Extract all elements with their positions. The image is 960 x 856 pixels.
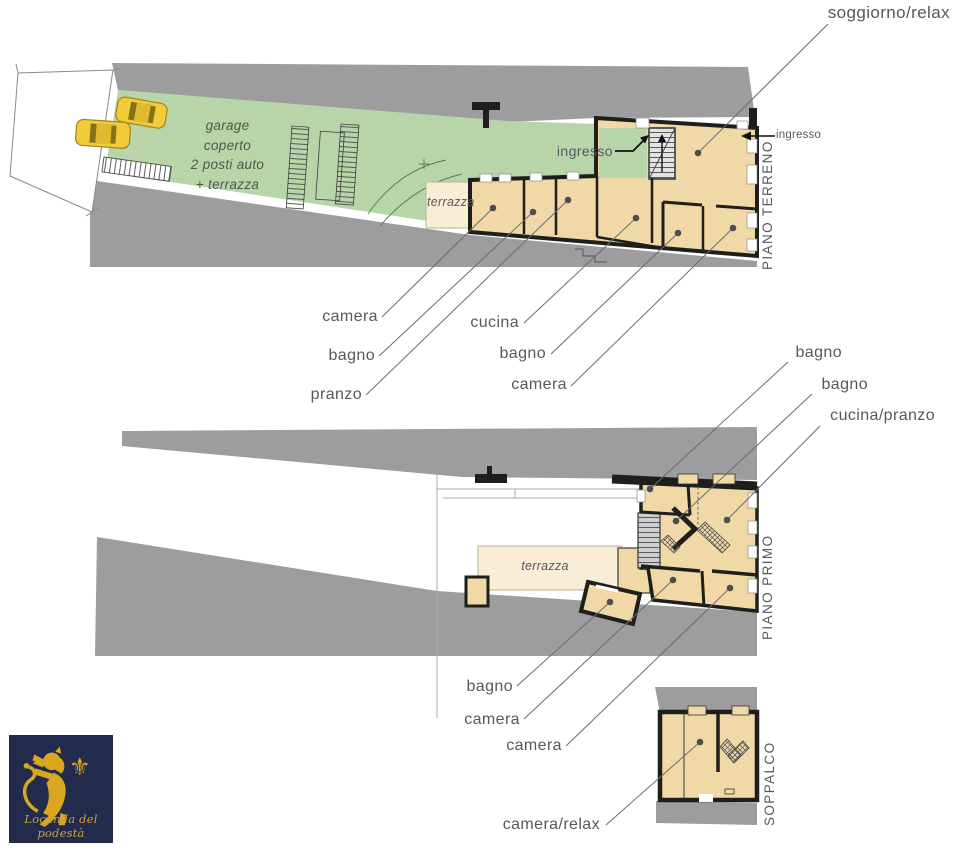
terrace-box	[466, 577, 488, 606]
label-bedroom-a-first: camera	[464, 711, 520, 729]
floor-title-ground: PIANO TERRENO	[760, 162, 775, 270]
label-living: soggiorno/relax	[828, 3, 950, 23]
wall-stub	[749, 108, 757, 128]
label-bath-mid-first: bagno	[822, 376, 869, 394]
floor-title-mezzanine: SOPPALCO	[762, 756, 777, 826]
label-bath-low-first: bagno	[467, 678, 514, 696]
label-kitchen-dining: cucina/pranzo	[830, 407, 935, 425]
first-stairs	[638, 513, 660, 568]
label-entry-exterior: ingresso	[776, 129, 821, 141]
street-lower-mezz	[656, 801, 757, 825]
label-bath-top-first: bagno	[796, 344, 843, 362]
first-floor-plan	[95, 427, 757, 718]
floor-title-first: PIANO PRIMO	[760, 548, 775, 640]
label-dining: pranzo	[311, 386, 362, 404]
ground-stairs	[649, 128, 675, 179]
label-bath-right: bagno	[500, 345, 547, 363]
label-entry-interior: ingresso	[557, 143, 613, 159]
label-bath-left: bagno	[329, 347, 376, 365]
label-terrace-first: terrazza	[500, 559, 590, 573]
ground-floor-plan	[10, 63, 775, 267]
fleur-de-lis-icon: ⚜	[69, 753, 91, 781]
label-kitchen: cucina	[470, 314, 519, 332]
label-bedroom-left: camera	[322, 308, 378, 326]
floorplan-sheet: soggiorno/relax ingresso ingresso garage…	[0, 0, 960, 856]
label-terrace-ground: terrazza	[427, 195, 471, 209]
label-bedroom-relax: camera/relax	[503, 816, 600, 834]
roof-upper-first	[122, 427, 757, 480]
hotel-logo: ⚜ Locanda del podestà	[9, 735, 113, 843]
logo-caption: Locanda del podestà	[9, 812, 113, 840]
mezzanine-plan	[655, 687, 757, 825]
car-icon	[75, 119, 131, 149]
mezzanine-building	[660, 706, 757, 802]
label-garage-note: garage coperto 2 posti auto + terrazza	[160, 116, 295, 194]
label-bedroom-b-first: camera	[506, 737, 562, 755]
label-bedroom-right: camera	[511, 376, 567, 394]
